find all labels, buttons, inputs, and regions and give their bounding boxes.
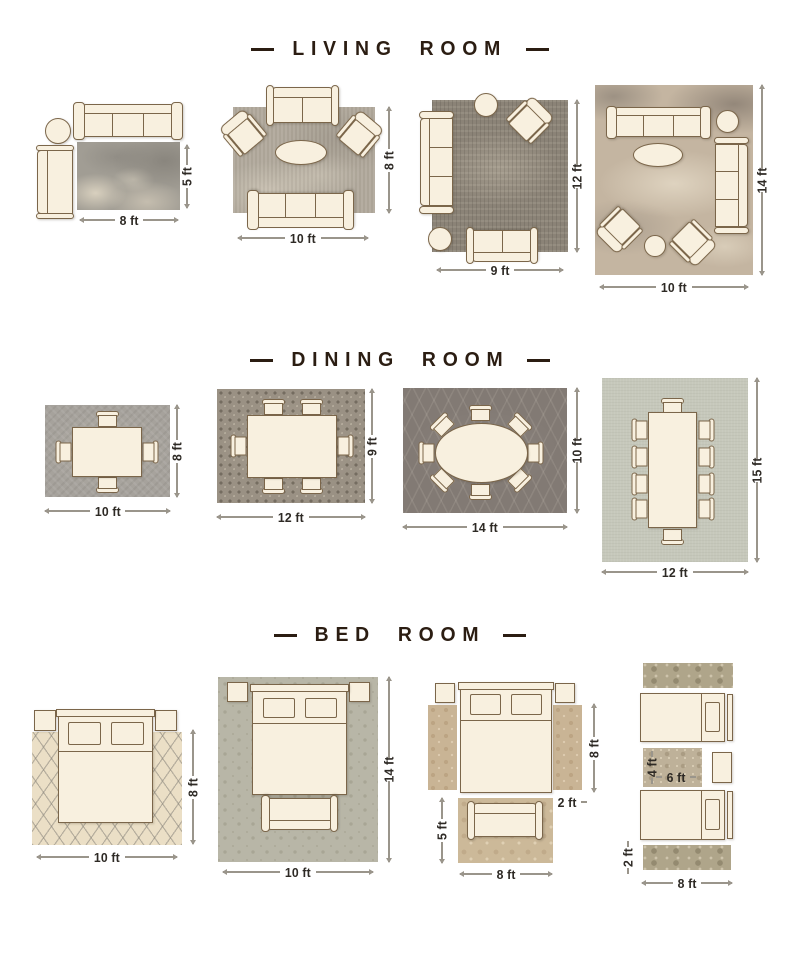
part-arm: [467, 801, 475, 839]
part-lab: 9 ft: [487, 263, 514, 278]
part-pw: [68, 722, 101, 745]
round-side-table: [716, 110, 739, 133]
part-cseat: [143, 443, 155, 462]
dining-chair: [632, 474, 648, 495]
part-lab: 5 ft: [176, 167, 199, 186]
bench: [262, 798, 337, 830]
part-arm: [419, 206, 455, 214]
part-seat: [715, 144, 739, 228]
part-fold: [252, 723, 347, 724]
section-title-text: BED ROOM: [315, 624, 486, 647]
part-ln: [316, 871, 373, 872]
dining-chair: [470, 405, 491, 421]
part-lab: 12 ft: [566, 163, 589, 189]
dining-table: [247, 415, 337, 478]
bench: [468, 803, 542, 837]
sofa: [267, 87, 338, 123]
part-arm: [171, 102, 183, 139]
part-part: [144, 114, 174, 136]
title-dash-left: [274, 634, 297, 637]
dimension-width: 10 ft: [238, 230, 368, 246]
part-pw: [263, 698, 295, 718]
section-title-bed-room: BED ROOM: [0, 624, 800, 647]
dimension-height: 9 ft: [364, 389, 380, 503]
part-ln: [37, 856, 89, 857]
dining-chair: [301, 399, 322, 415]
part-ln: [437, 269, 486, 270]
part-part: [268, 799, 331, 820]
dining-chair: [231, 436, 247, 457]
part-arm: [247, 190, 259, 230]
part-lab: 12 ft: [658, 565, 692, 580]
part-cseat: [471, 409, 490, 421]
part-pw: [511, 694, 542, 715]
part-ln: [761, 192, 762, 276]
nightstand: [227, 682, 248, 702]
part-ln: [602, 571, 657, 572]
part-lab: 6 ft: [663, 770, 690, 785]
part-tick: [627, 841, 628, 847]
part-lab: 14 ft: [378, 756, 401, 782]
part-arm: [266, 85, 274, 126]
part-tick: [581, 801, 587, 802]
nightstand: [435, 683, 455, 703]
dining-chair: [470, 484, 491, 500]
part-ln: [642, 882, 673, 883]
part-ln: [593, 704, 594, 737]
part-seat: [472, 230, 532, 253]
dimension-small-rug-width: 6 ft: [652, 769, 700, 785]
loveseat: [467, 230, 537, 262]
dimension-height: 8 ft: [381, 107, 397, 213]
bed: [58, 710, 153, 823]
section-title-dining-room: DINING ROOM: [0, 349, 800, 372]
part-ln: [371, 458, 372, 504]
part-lab: 5 ft: [431, 821, 454, 840]
part-arm: [330, 795, 338, 831]
part-lab: 8 ft: [493, 867, 520, 882]
part-cseat: [98, 415, 117, 427]
dining-chair: [56, 442, 72, 463]
part-cseat: [636, 448, 648, 467]
part-seat: [429, 118, 453, 206]
dimension-width: 10 ft: [600, 279, 748, 295]
part-seat: [47, 150, 73, 213]
part-arm: [530, 227, 538, 263]
part-ln: [321, 237, 368, 238]
part-arm: [73, 102, 85, 139]
part-cseat: [699, 475, 711, 494]
part-pw: [705, 799, 720, 830]
dining-chair: [699, 447, 715, 468]
part-part: [474, 814, 536, 836]
part-part: [256, 194, 286, 217]
dining-chair: [301, 478, 322, 494]
part-part: [674, 116, 702, 136]
part-ln: [460, 873, 492, 874]
part-ln: [186, 188, 187, 208]
dining-chair: [143, 442, 159, 463]
part-cseat: [636, 475, 648, 494]
title-dash-left: [250, 359, 273, 362]
dining-table: [648, 412, 697, 528]
part-cseat: [663, 529, 682, 541]
dimension-height: 8 ft: [169, 405, 185, 497]
part-hb: [727, 694, 733, 741]
part-lab: 12 ft: [274, 510, 308, 525]
sofa: [420, 112, 453, 212]
part-ln: [403, 526, 467, 527]
dimension-width: 14 ft: [403, 519, 567, 535]
part-fold: [58, 751, 153, 752]
part-ln: [176, 463, 177, 498]
part-part: [716, 200, 738, 227]
dimension-height: 12 ft: [569, 100, 585, 252]
part-cseat: [235, 437, 247, 456]
part-ln: [309, 516, 365, 517]
bed: [460, 683, 552, 793]
dimension-width: 10 ft: [45, 503, 170, 519]
dimension-height: 10 ft: [569, 388, 585, 513]
part-part: [48, 151, 72, 212]
runner-rug-bottom: [643, 845, 731, 870]
part-pw: [705, 702, 720, 732]
title-dash-right: [527, 359, 550, 362]
dining-chair: [632, 447, 648, 468]
dimension-runner-height: 2 ft: [620, 841, 636, 874]
part-ln: [192, 730, 193, 776]
dimension-width: 8 ft: [80, 212, 178, 228]
part-ln: [514, 269, 563, 270]
part-cseat: [98, 477, 117, 489]
sofa: [715, 138, 748, 233]
part-cseat: [471, 484, 490, 496]
part-ln: [186, 145, 187, 165]
part-ln: [576, 100, 577, 165]
oval-dining-table: [435, 423, 528, 483]
part-cseat: [264, 478, 283, 490]
part-hb: [458, 682, 554, 690]
oval-coffee-table: [633, 143, 683, 167]
part-ln: [371, 389, 372, 435]
part-lab: 10 ft: [91, 504, 125, 519]
part-pw: [111, 722, 144, 745]
part-ln: [756, 482, 757, 563]
part-cseat: [302, 403, 321, 415]
part-ln: [693, 571, 748, 572]
part-seat: [614, 115, 703, 137]
dimension-height: 14 ft: [754, 85, 770, 275]
part-ln: [600, 286, 656, 287]
part-ln: [692, 286, 748, 287]
dimension-height: 14 ft: [381, 677, 397, 862]
part-lab: 2 ft: [554, 795, 581, 810]
dining-chair: [699, 474, 715, 495]
dining-chair: [419, 443, 435, 464]
part-arm: [606, 106, 617, 140]
dining-chair: [97, 477, 118, 493]
dimension-bed-height: 8 ft: [586, 704, 602, 792]
part-cseat: [699, 421, 711, 440]
dimension-foot-rug-height: 5 ft: [434, 798, 450, 863]
part-back: [738, 144, 748, 228]
part-pw: [470, 694, 501, 715]
dimension-width: 10 ft: [223, 864, 373, 880]
part-part: [430, 148, 452, 177]
part-part: [503, 231, 532, 252]
part-hb: [56, 709, 155, 717]
part-part: [303, 98, 332, 122]
round-side-table: [474, 93, 498, 117]
part-lab: 14 ft: [468, 520, 502, 535]
part-seat: [267, 798, 332, 821]
part-arm: [331, 85, 339, 126]
part-arm: [466, 227, 474, 263]
part-cseat: [423, 444, 435, 463]
dining-chair: [662, 529, 683, 545]
part-arm: [714, 227, 750, 235]
part-ln: [520, 873, 552, 874]
dimension-height: 8 ft: [185, 730, 201, 844]
part-hb: [727, 791, 733, 839]
part-hb: [250, 684, 349, 692]
nightstand: [34, 710, 56, 731]
twin-bed: [640, 790, 725, 840]
section-title-living-room: LIVING ROOM: [0, 38, 800, 61]
part-cseat: [699, 448, 711, 467]
part-lab: 8 ft: [583, 738, 606, 757]
round-side-table: [644, 235, 666, 257]
part-ln: [223, 871, 280, 872]
part-cseat: [699, 500, 711, 519]
part-lab: 8 ft: [182, 777, 205, 796]
part-arm: [36, 145, 75, 151]
part-ln: [756, 378, 757, 459]
sofa: [248, 193, 353, 228]
living-rug-8x5: [77, 142, 180, 210]
part-seat: [473, 813, 537, 837]
part-tick: [690, 776, 696, 777]
part-ln: [125, 856, 177, 857]
round-side-table: [45, 118, 71, 144]
nightstand: [555, 683, 575, 703]
dining-chair: [263, 399, 284, 415]
dining-chair: [528, 443, 544, 464]
part-ln: [45, 510, 90, 511]
part-lab: 8 ft: [166, 441, 189, 460]
part-part: [615, 116, 644, 136]
dimension-width: 12 ft: [602, 564, 748, 580]
part-ln: [593, 760, 594, 793]
dining-chair: [338, 436, 354, 457]
nightstand: [155, 710, 177, 731]
dining-chair: [632, 499, 648, 520]
part-arm: [36, 213, 75, 219]
part-lab: 14 ft: [751, 167, 774, 193]
dimension-width: 12 ft: [217, 509, 365, 525]
part-lab: 2 ft: [618, 848, 639, 867]
dining-chair: [699, 420, 715, 441]
part-ln: [217, 516, 273, 517]
part-cseat: [302, 478, 321, 490]
part-lab: 8 ft: [116, 213, 143, 228]
dimension-width: 10 ft: [37, 849, 177, 865]
title-dash-right: [503, 634, 526, 637]
rug-size-guide-infographic: LIVING ROOM DINING ROOM BED ROOM 5 ft 8 …: [0, 0, 800, 978]
dining-chair: [97, 411, 118, 427]
part-cseat: [528, 444, 540, 463]
nightstand: [712, 752, 732, 783]
part-cseat: [636, 421, 648, 440]
part-dv: [701, 791, 702, 839]
part-tick: [656, 776, 662, 777]
part-ln: [761, 85, 762, 169]
dining-chair: [632, 420, 648, 441]
part-seat: [272, 97, 333, 123]
section-title-text: LIVING ROOM: [293, 38, 508, 61]
part-ln: [388, 172, 389, 214]
dimension-height: 15 ft: [749, 378, 765, 562]
part-back: [255, 217, 345, 228]
runner-rug-right: [553, 705, 582, 790]
part-arm: [261, 795, 269, 831]
round-side-table: [428, 227, 452, 251]
part-arm: [419, 111, 455, 119]
part-back: [472, 252, 532, 262]
part-ln: [701, 882, 732, 883]
dimension-foot-rug-width: 8 ft: [460, 866, 552, 882]
part-part: [273, 98, 303, 122]
part-lab: 8 ft: [674, 876, 701, 891]
dining-table: [72, 427, 142, 477]
part-part: [113, 114, 144, 136]
part-lab: 10 ft: [281, 865, 315, 880]
part-arm: [714, 137, 750, 145]
part-back: [267, 820, 332, 830]
twin-bed: [640, 693, 725, 742]
part-ln: [80, 219, 115, 220]
part-lab: 9 ft: [361, 436, 384, 455]
part-ln: [238, 237, 285, 238]
part-part: [716, 172, 738, 200]
part-ln: [503, 526, 567, 527]
part-tick: [651, 751, 652, 757]
part-part: [716, 145, 738, 173]
part-lab: 10 ft: [286, 231, 320, 246]
part-lab: 15 ft: [746, 457, 769, 483]
part-lab: 10 ft: [657, 280, 691, 295]
part-cseat: [636, 500, 648, 519]
sofa: [607, 107, 710, 137]
title-dash-left: [251, 48, 274, 51]
part-arm: [700, 106, 711, 140]
section-title-text: DINING ROOM: [291, 349, 509, 372]
part-part: [644, 116, 673, 136]
dimension-height: 5 ft: [179, 145, 195, 208]
part-part: [286, 194, 316, 217]
title-dash-right: [526, 48, 549, 51]
bed: [252, 685, 347, 795]
part-cseat: [264, 403, 283, 415]
part-cseat: [338, 437, 350, 456]
part-part: [316, 194, 345, 217]
part-part: [430, 119, 452, 148]
part-cseat: [60, 443, 72, 462]
part-lab: 8 ft: [378, 150, 401, 169]
runner-rug-left: [428, 705, 457, 790]
oval-coffee-table: [275, 140, 327, 165]
part-pw: [305, 698, 337, 718]
part-arm: [343, 190, 355, 230]
part-fold: [460, 720, 552, 721]
part-ln: [176, 405, 177, 440]
part-ln: [125, 510, 170, 511]
dimension-runner-width: 8 ft: [642, 875, 732, 891]
part-ln: [388, 677, 389, 758]
part-dv: [701, 694, 702, 741]
part-ln: [576, 388, 577, 439]
runner-rug-top: [643, 663, 733, 688]
part-ln: [388, 781, 389, 862]
part-lab: 10 ft: [90, 850, 124, 865]
sofa: [74, 104, 182, 137]
part-ln: [192, 799, 193, 845]
part-seat: [82, 113, 175, 137]
dimension-width: 9 ft: [437, 262, 563, 278]
part-arm: [535, 801, 543, 839]
part-lab: 10 ft: [566, 437, 589, 463]
part-ln: [576, 462, 577, 513]
part-part: [430, 177, 452, 205]
part-part: [473, 231, 503, 252]
part-ln: [576, 188, 577, 253]
part-ln: [441, 798, 442, 819]
dining-chair: [263, 478, 284, 494]
part-part: [83, 114, 114, 136]
part-seat: [255, 193, 345, 218]
chaise: [37, 146, 73, 218]
nightstand: [349, 682, 370, 702]
part-tick: [627, 868, 628, 874]
part-ln: [388, 107, 389, 149]
part-ln: [441, 842, 442, 863]
dining-chair: [699, 499, 715, 520]
part-ln: [143, 219, 178, 220]
